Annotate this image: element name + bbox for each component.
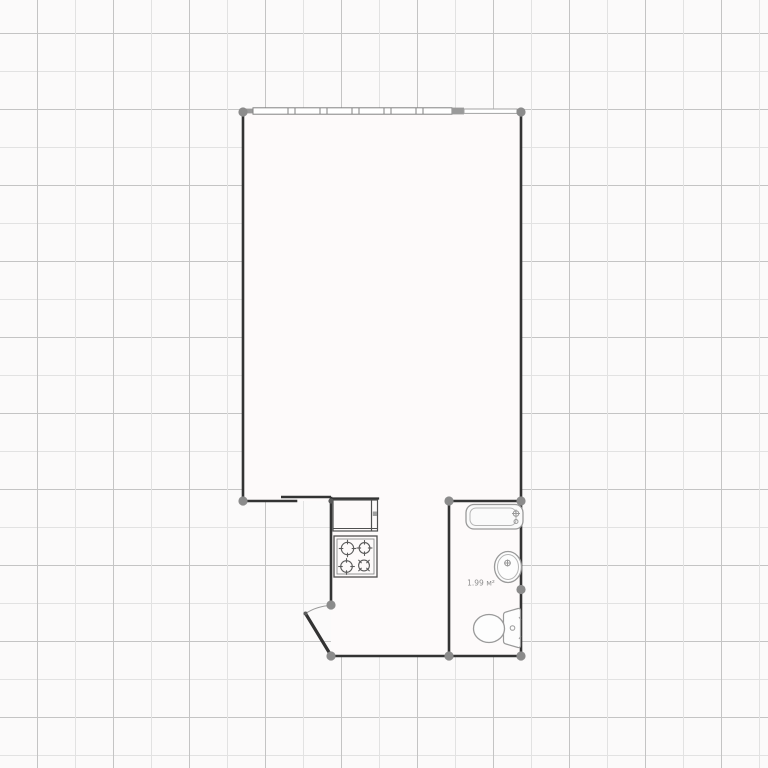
wall-joint-dot <box>326 651 335 660</box>
floor-plan: 1.99 м² <box>0 0 768 768</box>
wall-joint-dot <box>238 107 247 116</box>
window-icon <box>246 108 517 115</box>
bathtub-icon <box>466 505 523 530</box>
entry-door-icon <box>304 606 332 656</box>
wall-joint-dot <box>516 651 525 660</box>
bathroom-area-label: 1.99 м² <box>467 579 495 588</box>
wall-joint-dot <box>444 651 453 660</box>
wall-joint-dot <box>516 107 525 116</box>
wall-joint-dot <box>516 585 525 594</box>
wall-joint-dot <box>516 496 525 505</box>
sink-icon <box>495 552 522 583</box>
wall-joint-dot-small <box>328 498 333 503</box>
floor-area <box>243 111 521 656</box>
floor-plan-canvas: 1.99 м² <box>0 0 768 768</box>
wall-joint-dot <box>326 600 335 609</box>
wall-joint-dot <box>238 496 247 505</box>
wall-joint-dot <box>444 496 453 505</box>
